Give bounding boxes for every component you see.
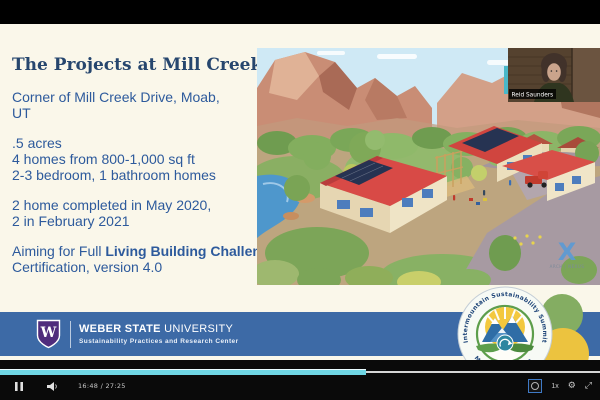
slide-background: The Projects at Mill Creek Corner of Mil…	[0, 24, 600, 360]
fullscreen-icon: ⤢	[585, 382, 592, 391]
progress-bar[interactable]	[0, 370, 600, 375]
webcam-video: Reid Saunders	[508, 48, 600, 102]
player-control-bar: 16:48 / 27:25 1x ⚙ ⤢	[0, 360, 600, 400]
slide-aiming: Aiming for Full Living Building Challeng…	[12, 243, 278, 275]
slide-location: Corner of Mill Creek Drive, Moab, UT	[12, 89, 278, 121]
volume-button[interactable]	[47, 382, 58, 391]
badge-recycle-emblem	[497, 335, 513, 351]
captions-icon	[531, 382, 539, 390]
progress-played[interactable]	[0, 370, 366, 375]
banner-subtitle: Sustainability Practices and Research Ce…	[79, 338, 239, 345]
svg-text:W: W	[40, 325, 57, 341]
fullscreen-button[interactable]: ⤢	[585, 382, 592, 391]
banner-divider	[70, 321, 71, 348]
slide-facts: .5 acres 4 homes from 800-1,000 sq ft 2-…	[12, 135, 278, 183]
svg-text:ARCH | NEXUS: ARCH | NEXUS	[550, 264, 585, 269]
name-tag-label: Reid Saunders	[512, 92, 554, 98]
pause-icon	[15, 382, 23, 391]
banner-org-name: WEBER STATE UNIVERSITY	[79, 323, 239, 335]
svg-text:X: X	[558, 238, 577, 266]
slide-title: The Projects at Mill Creek	[12, 54, 278, 76]
speaker-icon	[47, 382, 58, 391]
playback-speed-button[interactable]: 1x	[551, 383, 558, 390]
pause-button[interactable]	[15, 382, 23, 391]
wsu-shield-icon: W	[36, 319, 61, 349]
captions-button[interactable]	[528, 379, 542, 393]
video-player-window: The Projects at Mill Creek Corner of Mil…	[0, 0, 600, 400]
slide-completion: 2 home completed in May 2020, 2 in Febru…	[12, 197, 278, 229]
time-display: 16:48 / 27:25	[78, 382, 126, 390]
slide-text-block: The Projects at Mill Creek Corner of Mil…	[12, 54, 278, 275]
settings-button[interactable]: ⚙	[568, 382, 576, 391]
gear-icon: ⚙	[568, 382, 576, 391]
